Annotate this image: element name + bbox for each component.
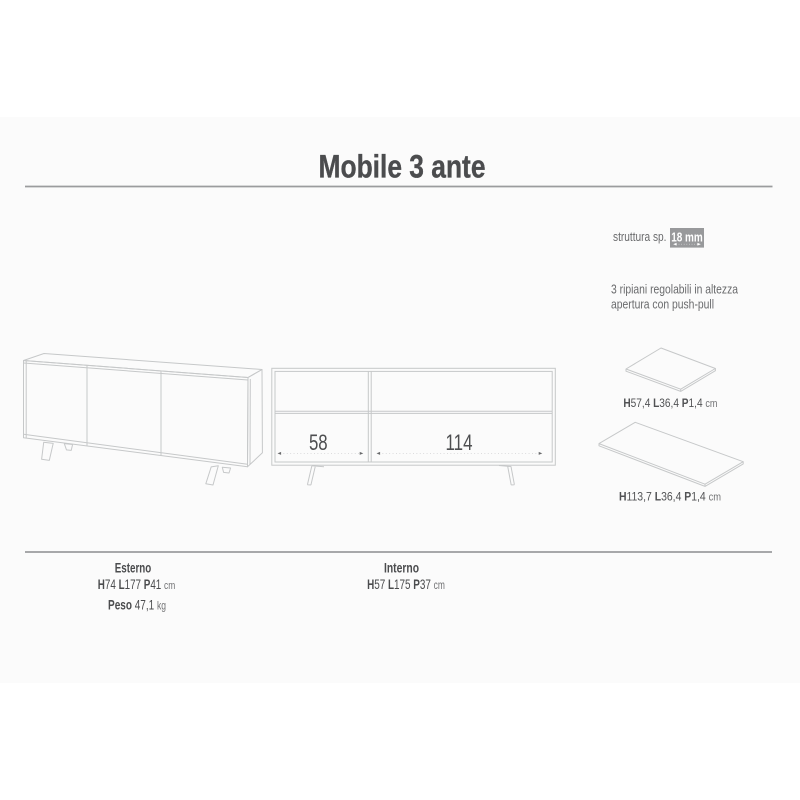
svg-text:Esterno: Esterno bbox=[115, 561, 152, 576]
svg-text:Peso 47,1 kg: Peso 47,1 kg bbox=[108, 597, 166, 613]
svg-text:struttura sp.: struttura sp. bbox=[613, 230, 667, 244]
svg-text:H57,4 L36,4 P1,4 cm: H57,4 L36,4 P1,4 cm bbox=[623, 397, 717, 410]
svg-text:114: 114 bbox=[446, 430, 473, 455]
svg-text:58: 58 bbox=[309, 430, 328, 455]
svg-text:3 ripiani regolabili in altezz: 3 ripiani regolabili in altezza bbox=[611, 282, 739, 297]
svg-text:Mobile 3 ante: Mobile 3 ante bbox=[319, 149, 486, 185]
svg-text:18 mm: 18 mm bbox=[671, 230, 703, 245]
svg-text:H57 L175 P37 cm: H57 L175 P37 cm bbox=[367, 576, 445, 592]
svg-text:H74 L177 P41 cm: H74 L177 P41 cm bbox=[98, 576, 175, 592]
svg-text:apertura con push-pull: apertura con push-pull bbox=[611, 297, 714, 312]
svg-text:Interno: Interno bbox=[384, 561, 419, 576]
svg-text:H113,7 L36,4 P1,4 cm: H113,7 L36,4 P1,4 cm bbox=[619, 491, 721, 504]
